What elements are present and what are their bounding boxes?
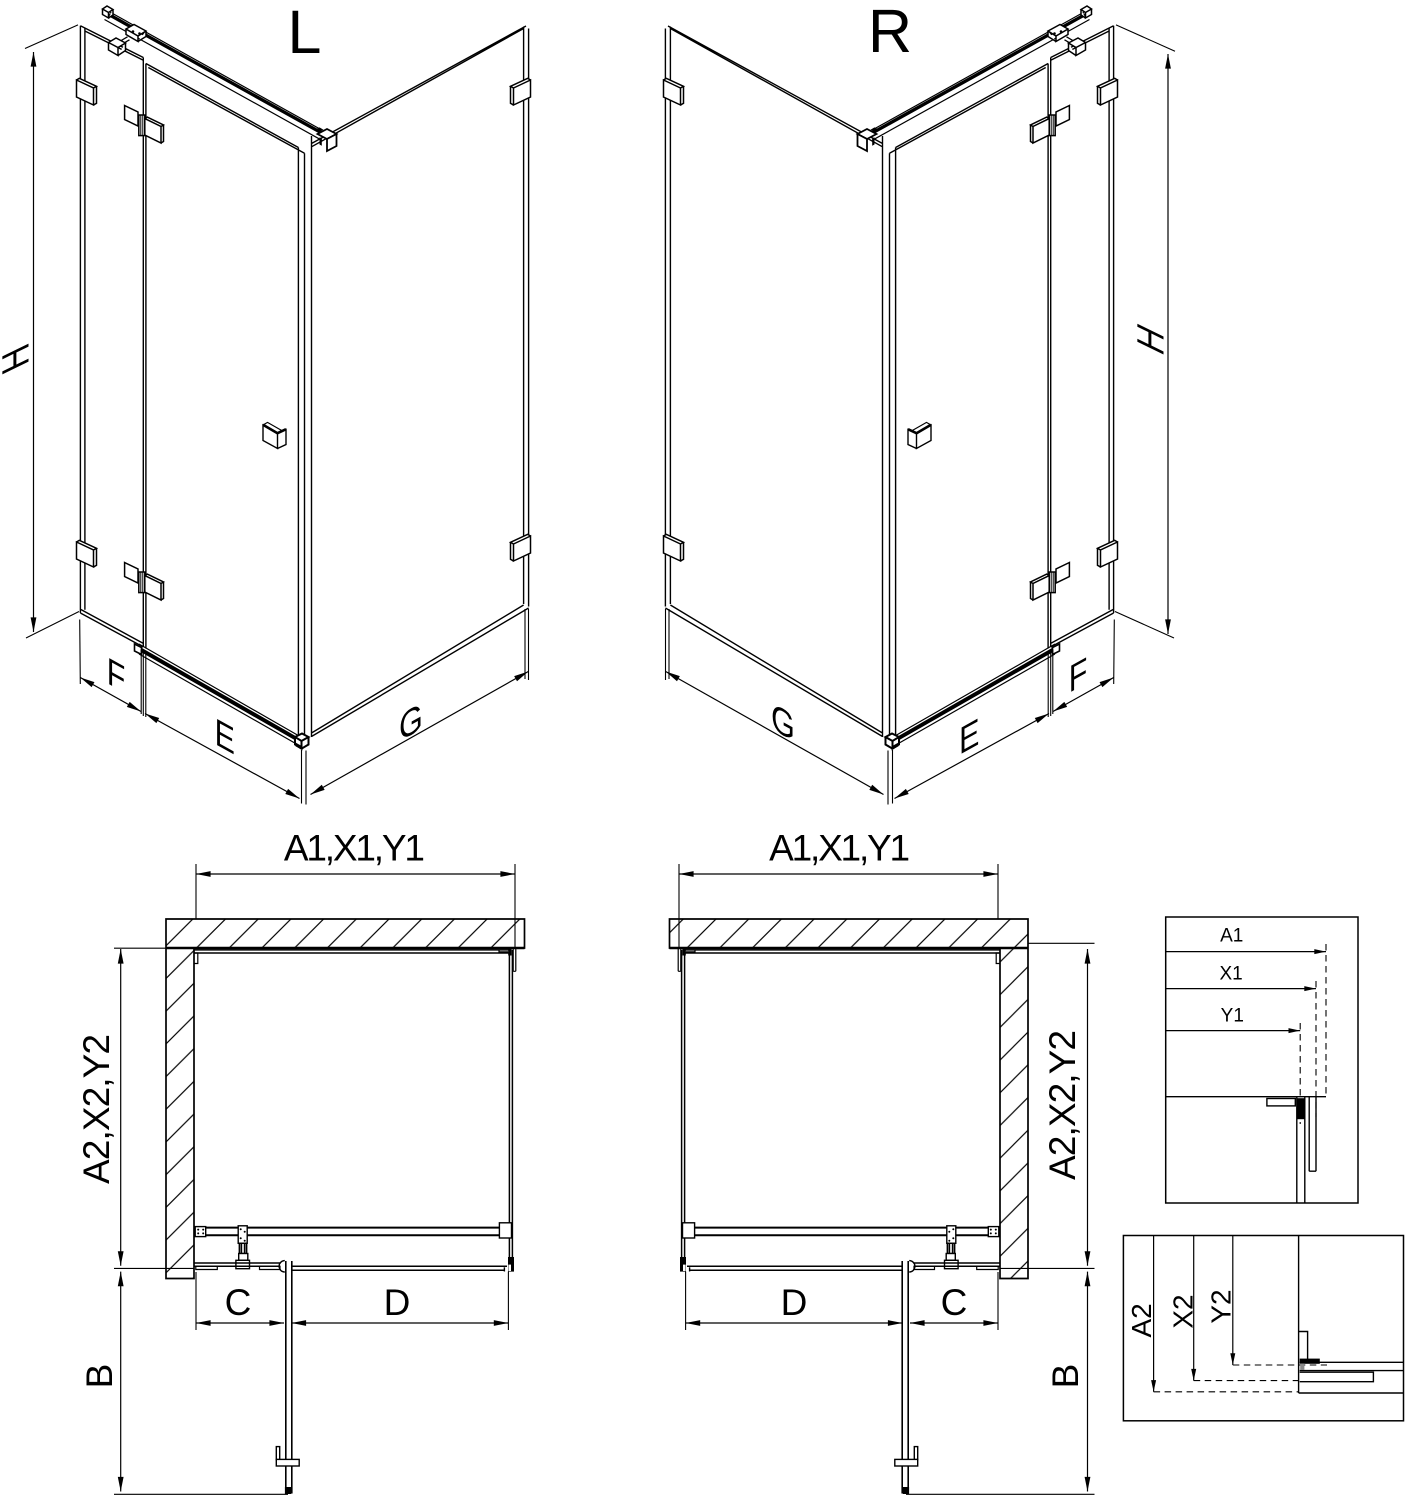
svg-text:B: B — [79, 1364, 120, 1389]
svg-text:R: R — [868, 0, 912, 65]
svg-text:X2: X2 — [1167, 1294, 1198, 1328]
svg-text:C: C — [941, 1282, 968, 1323]
svg-text:A1,X1,Y1: A1,X1,Y1 — [769, 827, 910, 868]
svg-text:Y2: Y2 — [1206, 1289, 1237, 1323]
svg-text:A1,X1,Y1: A1,X1,Y1 — [284, 827, 425, 868]
svg-text:Y1: Y1 — [1221, 1006, 1244, 1027]
svg-text:A1: A1 — [1220, 926, 1243, 947]
svg-text:A2,X2,Y2: A2,X2,Y2 — [1042, 1030, 1083, 1180]
svg-text:B: B — [1045, 1364, 1086, 1389]
svg-text:L: L — [288, 0, 322, 66]
svg-text:A2,X2,Y2: A2,X2,Y2 — [76, 1034, 117, 1184]
svg-text:D: D — [781, 1282, 808, 1323]
svg-text:A2: A2 — [1126, 1303, 1157, 1337]
svg-text:C: C — [225, 1282, 252, 1323]
svg-text:D: D — [384, 1282, 411, 1323]
svg-text:X1: X1 — [1219, 964, 1242, 985]
